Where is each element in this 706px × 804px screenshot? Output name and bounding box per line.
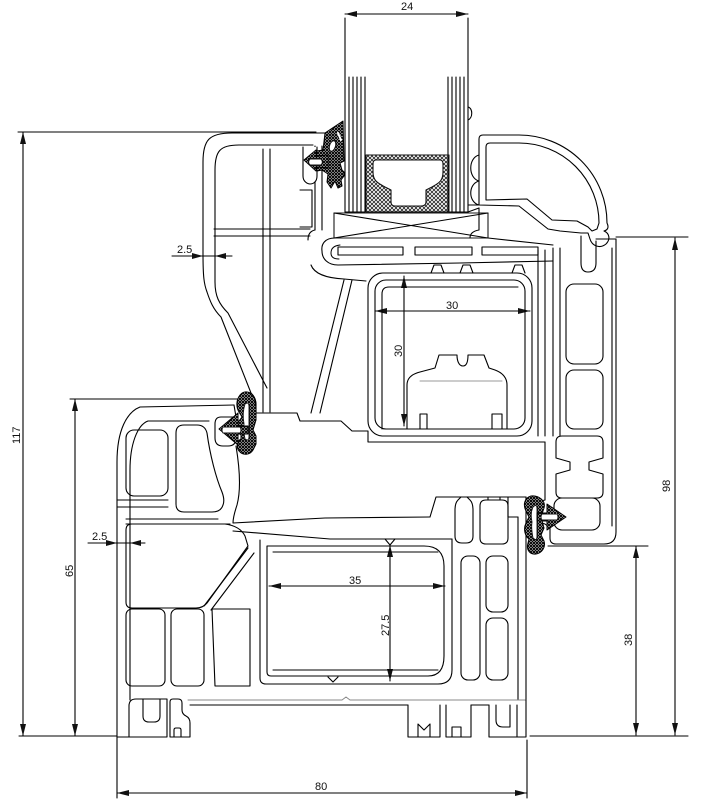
svg-text:38: 38 (623, 634, 635, 646)
svg-text:98: 98 (661, 480, 673, 492)
svg-text:2.5: 2.5 (92, 531, 107, 543)
svg-text:24: 24 (401, 1, 413, 13)
svg-text:117: 117 (11, 426, 23, 444)
svg-text:80: 80 (315, 781, 327, 793)
svg-text:27.5: 27.5 (380, 615, 392, 636)
svg-text:30: 30 (393, 345, 405, 357)
svg-text:35: 35 (349, 575, 361, 587)
svg-text:2.5: 2.5 (177, 244, 192, 256)
svg-text:30: 30 (446, 300, 458, 312)
svg-text:65: 65 (64, 565, 76, 577)
